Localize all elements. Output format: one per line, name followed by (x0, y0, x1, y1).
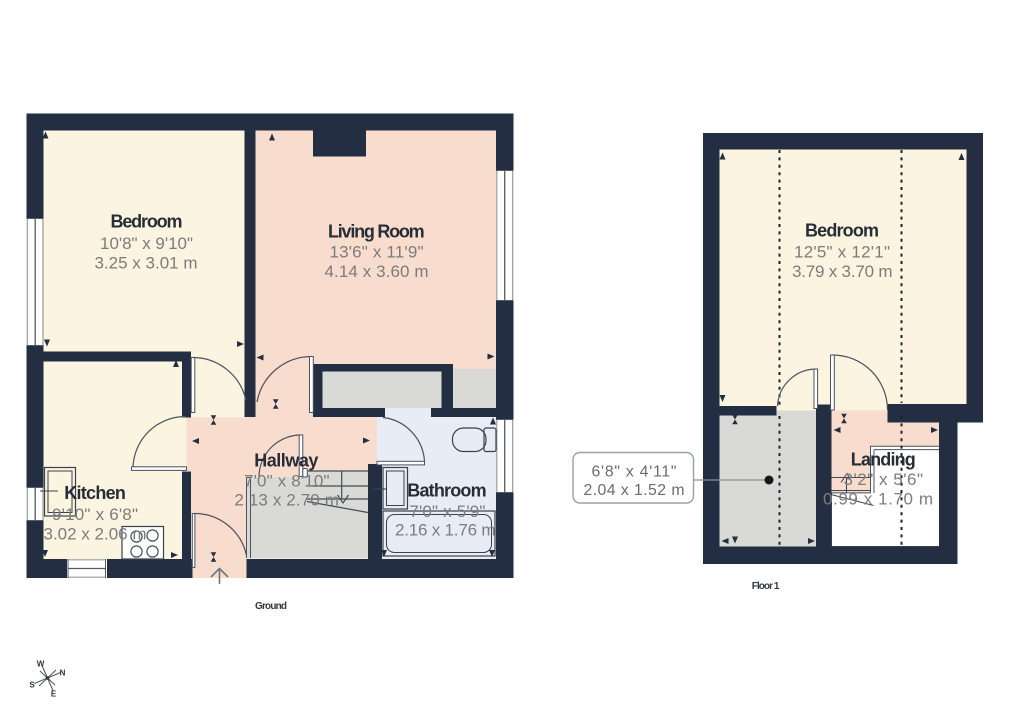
svg-text:W: W (37, 660, 45, 669)
svg-text:10'8" x 9'10": 10'8" x 9'10" (100, 234, 193, 253)
svg-text:13'6" x 11'9": 13'6" x 11'9" (330, 243, 424, 262)
svg-text:S: S (29, 681, 35, 690)
svg-text:Kitchen: Kitchen (64, 483, 126, 503)
svg-text:9'10" x 6'8": 9'10" x 6'8" (52, 505, 138, 524)
svg-text:Living Room: Living Room (328, 222, 425, 242)
svg-text:Bedroom: Bedroom (805, 221, 879, 241)
svg-text:2.04 x 1.52 m: 2.04 x 1.52 m (584, 482, 685, 499)
svg-text:6'8" x 4'11": 6'8" x 4'11" (592, 464, 677, 481)
svg-text:Floor 1: Floor 1 (752, 581, 780, 592)
svg-text:7'0" x 5'9": 7'0" x 5'9" (409, 502, 485, 521)
svg-text:0.99 x 1.70 m: 0.99 x 1.70 m (823, 489, 933, 508)
svg-text:3.02 x 2.06 m: 3.02 x 2.06 m (44, 525, 147, 544)
svg-text:3'2" x 5'6": 3'2" x 5'6" (844, 470, 924, 489)
svg-text:Ground: Ground (255, 601, 287, 612)
svg-text:12'5" x 12'1": 12'5" x 12'1" (794, 243, 890, 262)
svg-text:Hallway: Hallway (254, 451, 318, 471)
svg-text:Bathroom: Bathroom (407, 481, 486, 501)
svg-text:E: E (51, 690, 57, 699)
svg-text:Bedroom: Bedroom (111, 211, 183, 231)
svg-text:Landing: Landing (851, 449, 916, 469)
svg-text:7'0" x 8'10": 7'0" x 8'10" (244, 472, 330, 491)
svg-text:3.25 x 3.01 m: 3.25 x 3.01 m (95, 254, 198, 273)
svg-text:4.14 x 3.60 m: 4.14 x 3.60 m (325, 262, 429, 281)
svg-text:N: N (60, 669, 66, 678)
svg-text:2.13 x 2.70 m: 2.13 x 2.70 m (234, 491, 339, 510)
svg-text:2.16 x 1.76 m: 2.16 x 1.76 m (395, 520, 496, 539)
svg-text:3.79 x 3.70 m: 3.79 x 3.70 m (792, 262, 893, 281)
